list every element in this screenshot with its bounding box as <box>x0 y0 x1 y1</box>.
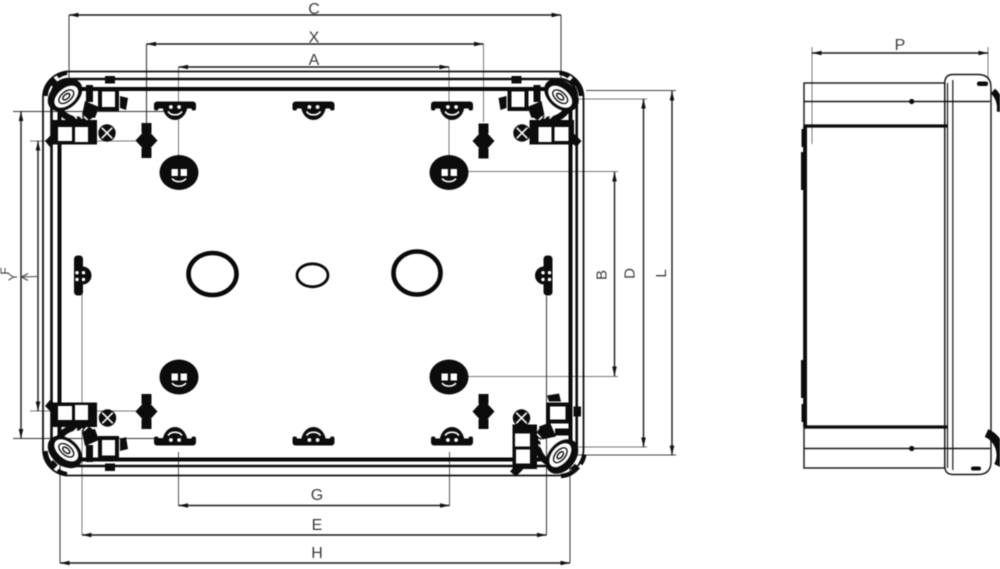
svg-text:Y: Y <box>6 273 20 281</box>
svg-text:L: L <box>653 269 670 277</box>
svg-text:B: B <box>594 270 611 280</box>
svg-text:P: P <box>895 37 906 54</box>
svg-text:C: C <box>308 1 320 18</box>
svg-text:A: A <box>309 52 320 69</box>
svg-text:G: G <box>311 487 323 504</box>
svg-text:X: X <box>309 30 320 47</box>
svg-text:E: E <box>312 517 323 534</box>
svg-text:H: H <box>311 545 323 562</box>
svg-text:D: D <box>622 268 639 279</box>
